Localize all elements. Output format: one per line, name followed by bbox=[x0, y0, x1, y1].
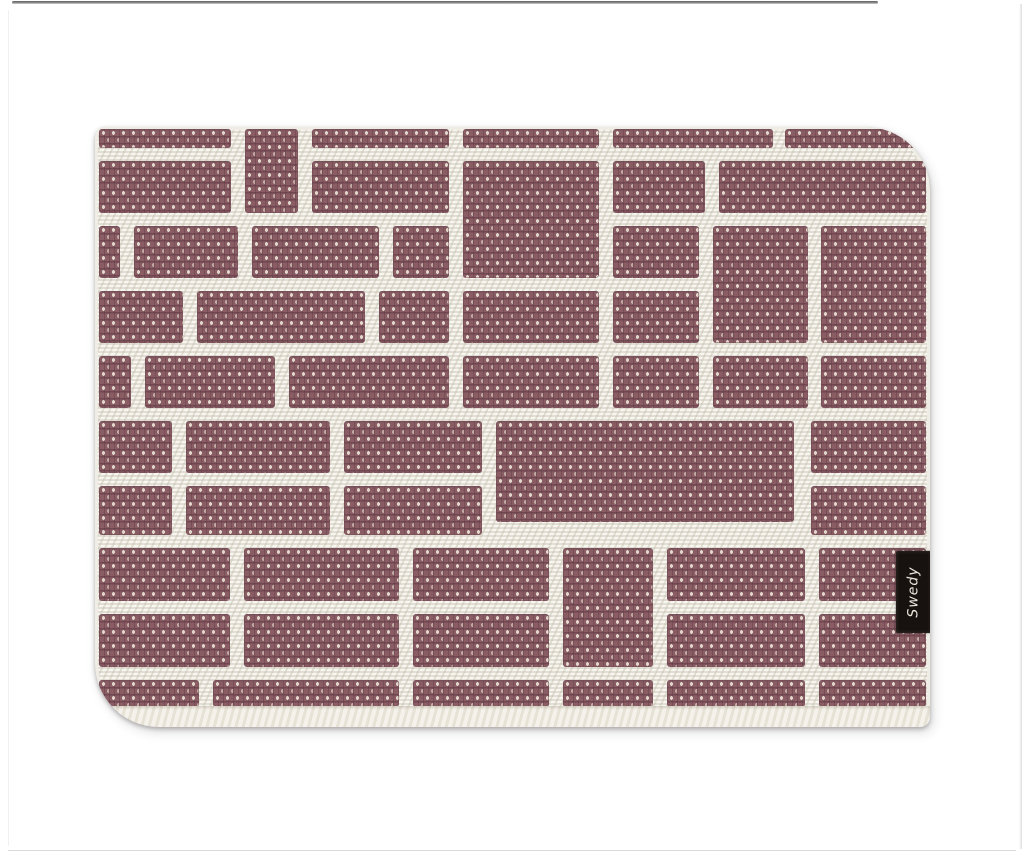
pattern-brick bbox=[819, 680, 926, 707]
pattern-brick bbox=[186, 486, 330, 535]
pattern-brick bbox=[613, 356, 699, 408]
pattern-brick bbox=[145, 356, 275, 408]
pattern-brick bbox=[99, 356, 131, 408]
pattern-brick bbox=[99, 486, 172, 535]
pattern-brick bbox=[99, 161, 231, 213]
pattern-brick bbox=[713, 226, 808, 343]
pattern-brick bbox=[99, 129, 231, 148]
brand-tag: Swedy bbox=[896, 551, 930, 633]
pattern-brick bbox=[413, 548, 549, 601]
pattern-brick bbox=[344, 421, 482, 473]
pattern-brick bbox=[463, 161, 599, 278]
woven-selvage-edge bbox=[95, 706, 930, 727]
pattern-brick bbox=[99, 614, 230, 667]
pattern-brick bbox=[99, 291, 183, 343]
pattern-brick bbox=[393, 226, 449, 278]
pattern-brick bbox=[613, 291, 699, 343]
pattern-brick bbox=[496, 421, 794, 522]
pattern-brick bbox=[463, 129, 599, 148]
pattern-brick bbox=[312, 129, 449, 148]
pattern-brick bbox=[667, 548, 805, 601]
pattern-brick bbox=[811, 421, 926, 473]
pattern-brick bbox=[252, 226, 379, 278]
photo-frame-top-edge bbox=[12, 1, 878, 4]
pattern-brick bbox=[312, 161, 449, 213]
pattern-brick bbox=[413, 614, 549, 667]
product-photo-page: Swedy bbox=[0, 0, 1024, 854]
pattern-brick bbox=[134, 226, 238, 278]
pattern-brick bbox=[667, 680, 805, 707]
pattern-brick bbox=[713, 356, 808, 408]
pattern-brick bbox=[186, 421, 330, 473]
pattern-brick bbox=[613, 161, 705, 213]
pattern-brick bbox=[289, 356, 449, 408]
pattern-brick bbox=[99, 226, 120, 278]
pattern-brick bbox=[413, 680, 549, 707]
pattern-brick bbox=[244, 548, 399, 601]
pattern-brick bbox=[667, 614, 805, 667]
brand-tag-label: Swedy bbox=[906, 566, 922, 617]
pattern-brick bbox=[563, 548, 653, 667]
pattern-brick bbox=[811, 486, 926, 535]
pattern-brick bbox=[99, 421, 172, 473]
pattern-brick bbox=[613, 226, 699, 278]
pattern-brick bbox=[463, 291, 599, 343]
photo-frame-left-edge bbox=[8, 10, 9, 846]
pattern-brick bbox=[379, 291, 449, 343]
pattern-brick bbox=[719, 161, 926, 213]
pattern-brick bbox=[197, 291, 365, 343]
placemat-product-image: Swedy bbox=[95, 127, 930, 727]
pattern-brick bbox=[785, 129, 926, 148]
photo-frame-right-edge bbox=[1019, 4, 1022, 849]
pattern-brick bbox=[821, 226, 926, 343]
pattern-brick bbox=[99, 548, 230, 601]
pattern-brick bbox=[821, 356, 926, 408]
pattern-brick bbox=[213, 680, 399, 707]
pattern-brick bbox=[344, 486, 482, 535]
pattern-brick bbox=[99, 680, 199, 707]
pattern-brick bbox=[563, 680, 653, 707]
photo-frame-bottom-edge bbox=[8, 850, 1016, 851]
pattern-brick bbox=[613, 129, 773, 148]
pattern-brick bbox=[244, 614, 399, 667]
pattern-brick bbox=[245, 129, 298, 213]
pattern-brick bbox=[463, 356, 599, 408]
